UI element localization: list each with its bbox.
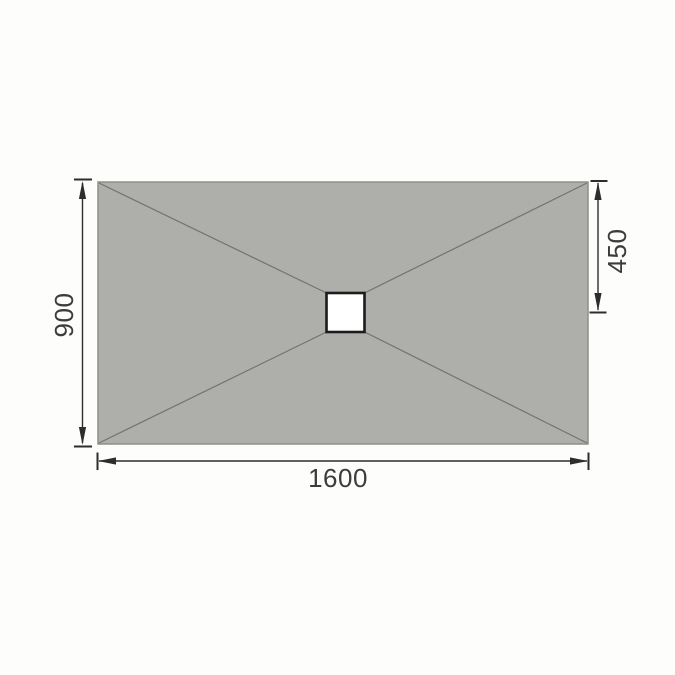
arrowhead-down-icon bbox=[594, 293, 601, 311]
width-dimension-label: 1600 bbox=[308, 463, 368, 493]
arrowhead-up-icon bbox=[594, 182, 601, 200]
width-dimension: 1600 bbox=[98, 453, 589, 494]
arrowhead-left-icon bbox=[98, 457, 116, 464]
drain-square bbox=[327, 293, 365, 332]
height-dimension: 900 bbox=[49, 180, 92, 447]
arrowhead-right-icon bbox=[570, 457, 588, 464]
height-dimension-label: 900 bbox=[49, 293, 79, 338]
arrowhead-up-icon bbox=[79, 181, 86, 199]
drain-offset-dimension-label: 450 bbox=[602, 229, 632, 274]
drain-offset-dimension: 450 bbox=[590, 181, 633, 313]
arrowhead-down-icon bbox=[79, 427, 86, 445]
shower-tray-plan-diagram: 900 1600 450 bbox=[0, 0, 675, 675]
diagram-canvas: 900 1600 450 bbox=[0, 0, 675, 675]
